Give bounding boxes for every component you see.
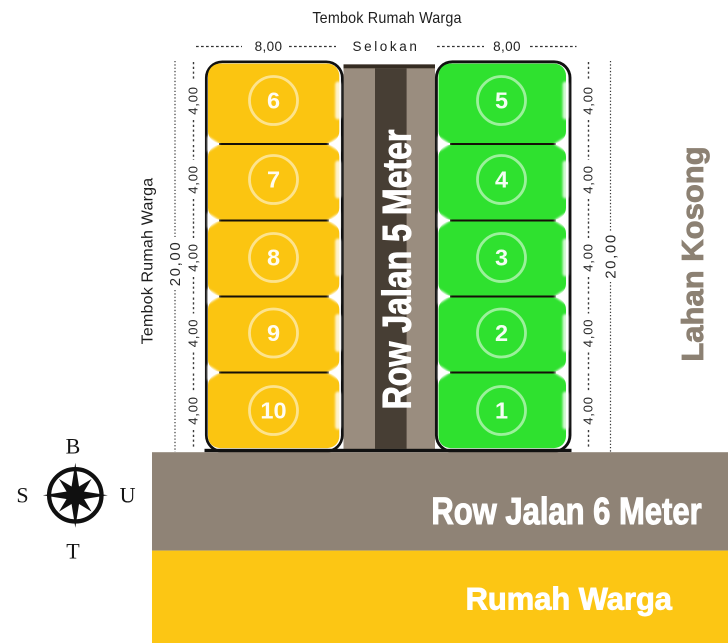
svg-text:U: U [120, 483, 136, 508]
svg-text:4,00: 4,00 [186, 86, 201, 115]
svg-text:8,00: 8,00 [493, 39, 521, 54]
svg-text:9: 9 [267, 320, 280, 346]
svg-text:10: 10 [260, 398, 286, 424]
svg-text:Rumah Warga: Rumah Warga [466, 581, 673, 616]
svg-text:20,00: 20,00 [603, 233, 620, 279]
svg-text:Tembok Rumah Warga: Tembok Rumah Warga [140, 178, 157, 345]
svg-text:4,00: 4,00 [186, 319, 201, 348]
svg-text:4,00: 4,00 [581, 319, 596, 348]
svg-text:Lahan Kosong: Lahan Kosong [675, 146, 710, 361]
svg-text:4,00: 4,00 [186, 165, 201, 194]
svg-text:S: S [16, 483, 28, 508]
svg-text:Row Jalan 5 Meter: Row Jalan 5 Meter [374, 130, 419, 410]
svg-text:B: B [66, 434, 81, 459]
svg-text:8: 8 [267, 245, 280, 271]
svg-text:4,00: 4,00 [581, 86, 596, 115]
svg-text:Selokan: Selokan [353, 39, 420, 54]
svg-text:Tembok Rumah Warga: Tembok Rumah Warga [312, 10, 462, 28]
svg-text:6: 6 [267, 88, 280, 114]
svg-text:4,00: 4,00 [581, 243, 596, 272]
svg-text:2: 2 [495, 320, 508, 346]
svg-text:1: 1 [495, 398, 508, 424]
svg-text:4,00: 4,00 [186, 396, 201, 425]
svg-text:5: 5 [495, 88, 508, 114]
svg-text:Row Jalan 6 Meter: Row Jalan 6 Meter [431, 490, 702, 533]
svg-text:7: 7 [267, 167, 280, 193]
svg-text:4: 4 [495, 167, 508, 193]
svg-text:4,00: 4,00 [581, 165, 596, 194]
svg-text:4,00: 4,00 [186, 243, 201, 272]
svg-text:20,00: 20,00 [167, 241, 184, 287]
svg-text:8,00: 8,00 [255, 39, 283, 54]
svg-text:3: 3 [495, 245, 508, 271]
svg-text:T: T [66, 539, 80, 564]
svg-text:4,00: 4,00 [581, 396, 596, 425]
